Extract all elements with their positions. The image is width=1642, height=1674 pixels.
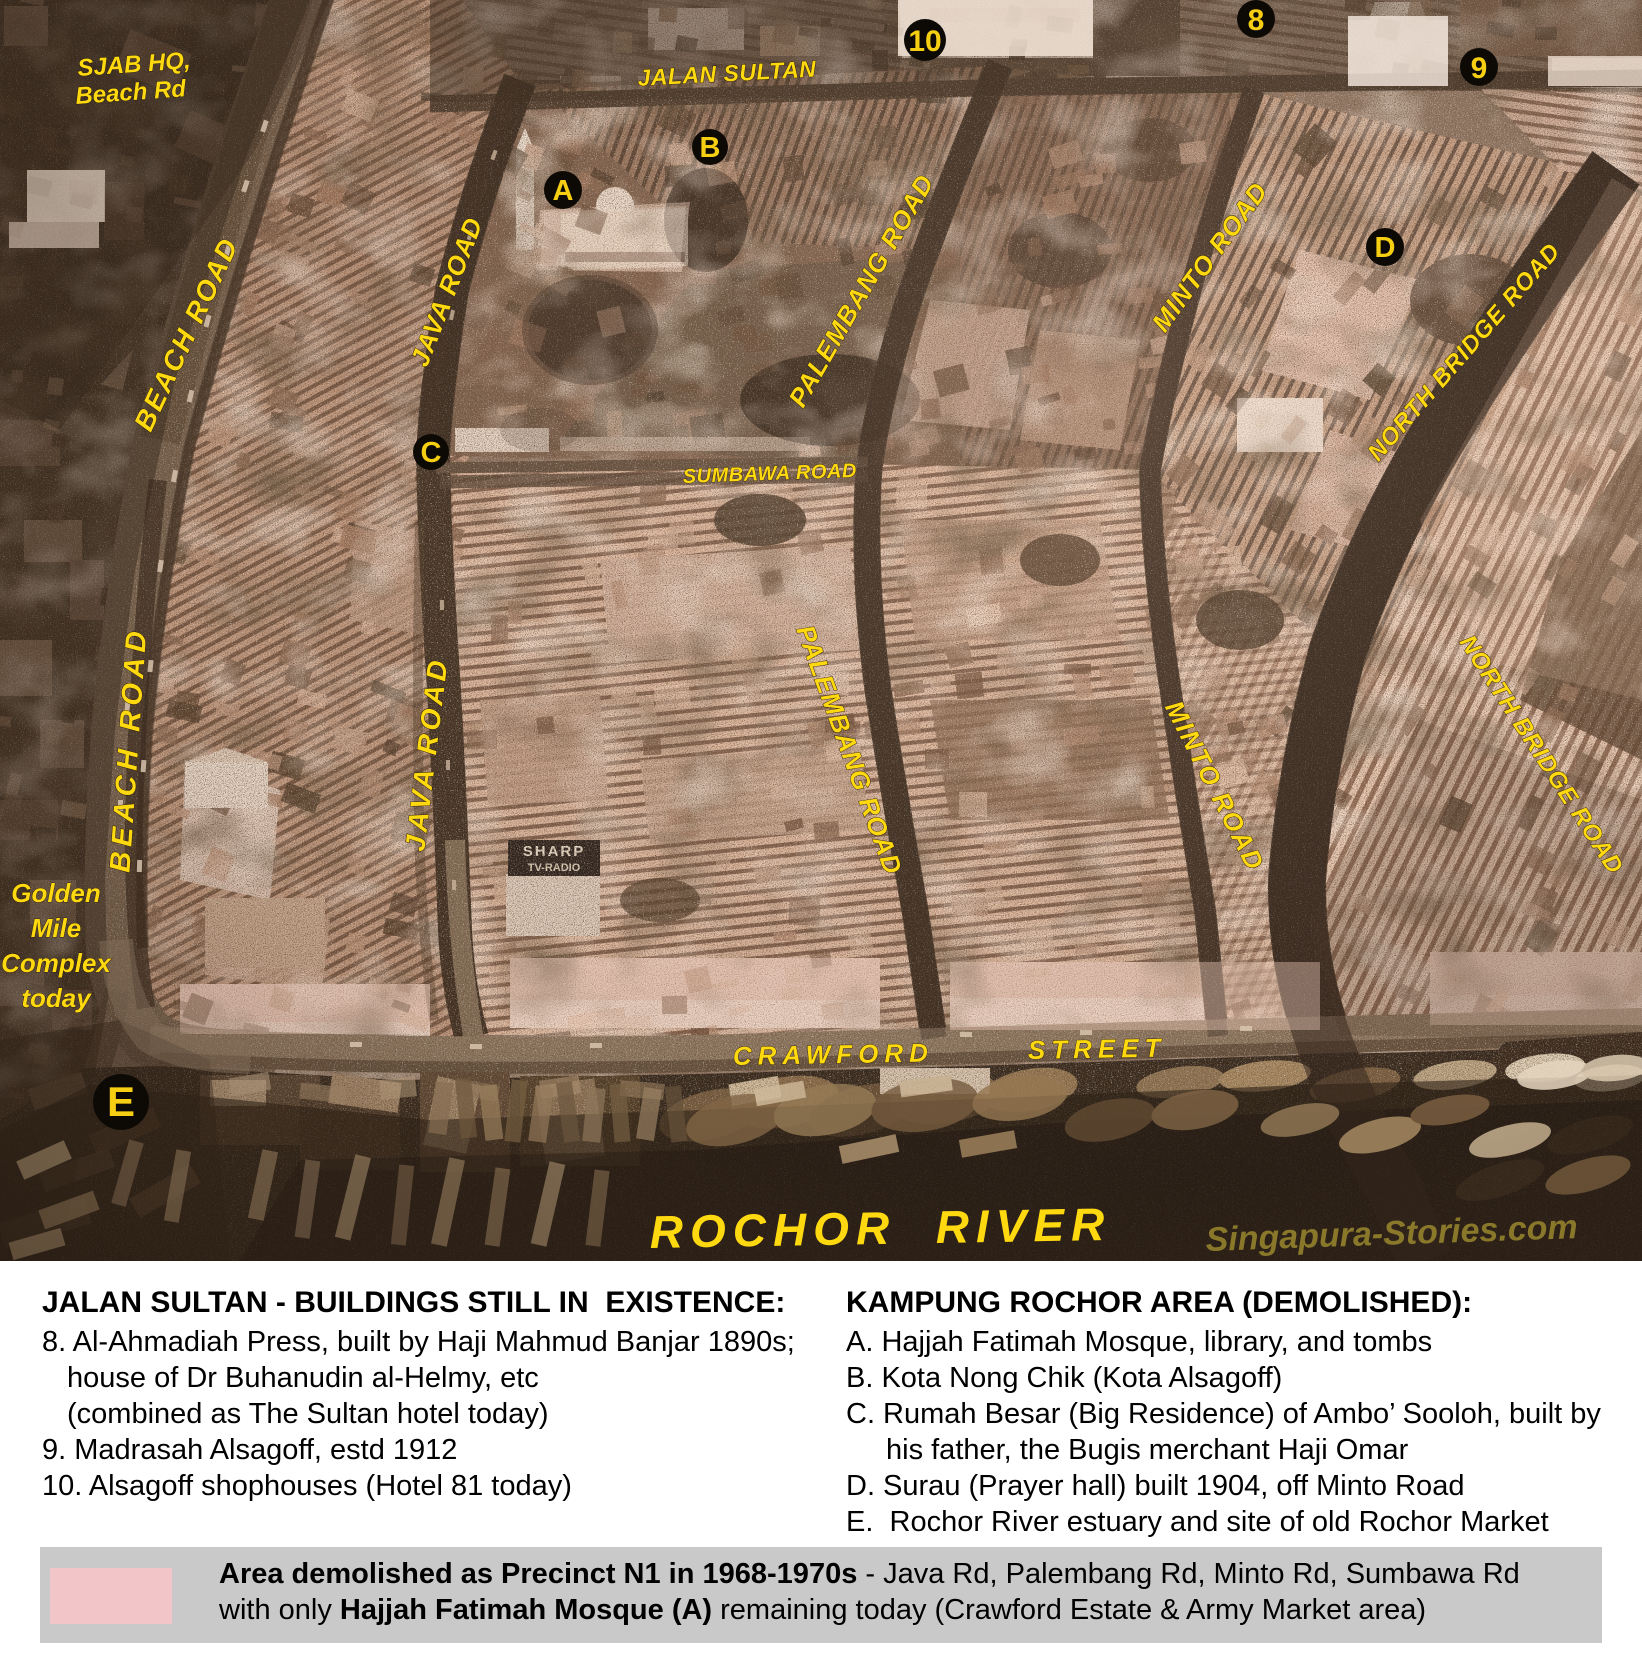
svg-text:A: A	[553, 175, 574, 207]
svg-text:today: today	[21, 983, 92, 1013]
svg-text:ROCHOR RIVER: ROCHOR RIVER	[649, 1198, 1111, 1258]
svg-text:9: 9	[1471, 52, 1488, 85]
svg-text:B: B	[700, 132, 721, 164]
svg-text:10: 10	[908, 25, 941, 58]
svg-text:8: 8	[1248, 4, 1265, 37]
svg-text:Golden: Golden	[11, 878, 101, 908]
svg-text:Mile: Mile	[31, 913, 82, 943]
svg-text:CRAWFORD: CRAWFORD	[733, 1037, 935, 1071]
svg-text:D: D	[1375, 232, 1396, 264]
svg-text:STREET: STREET	[1028, 1033, 1167, 1065]
svg-text:Complex: Complex	[1, 948, 112, 978]
svg-text:C: C	[421, 437, 442, 469]
svg-text:E: E	[107, 1078, 135, 1125]
